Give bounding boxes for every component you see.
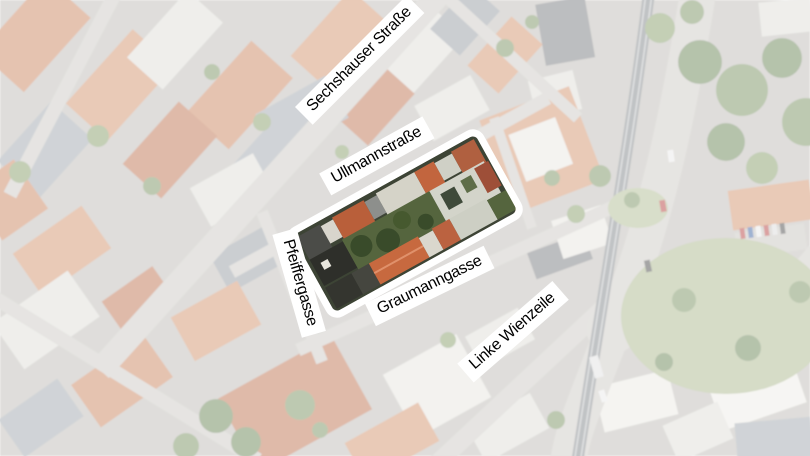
satellite-basemap [0, 0, 810, 456]
aerial-map-image: Sechshauser Straße Ullmannstraße Pfeiffe… [0, 0, 810, 456]
